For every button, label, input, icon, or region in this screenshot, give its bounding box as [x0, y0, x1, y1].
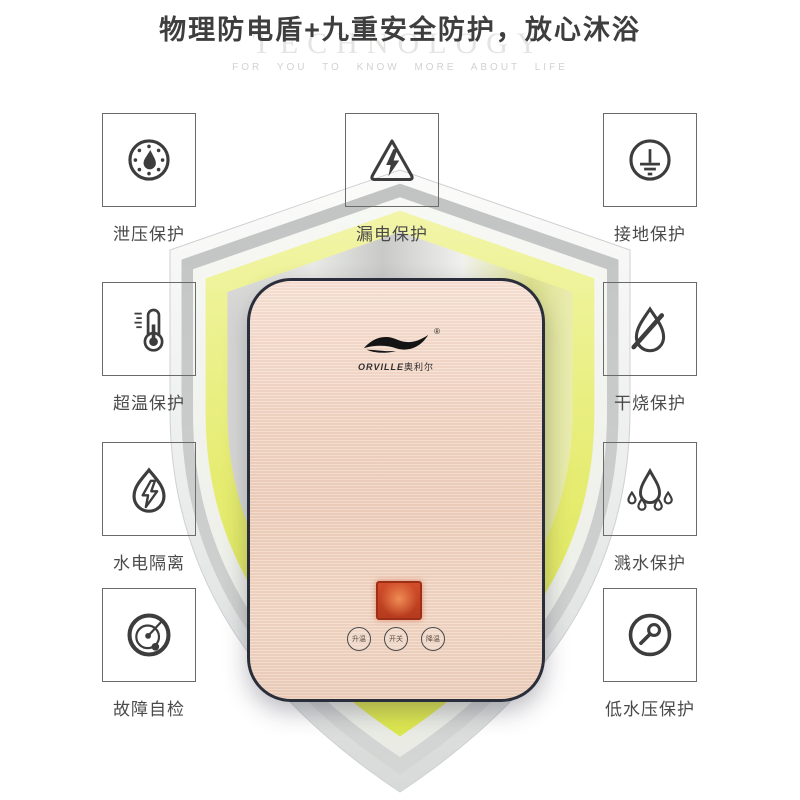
water-electric-icon — [120, 460, 178, 518]
feature-low-water-pressure: 低水压保护 — [603, 588, 697, 720]
feature-box — [603, 588, 697, 682]
temp-up-button: 升温 — [347, 627, 371, 651]
registered-mark: ® — [434, 327, 440, 336]
feature-label: 水电隔离 — [113, 549, 185, 574]
feature-label: 泄压保护 — [113, 220, 185, 245]
brand-name-en: ORVILLE — [358, 362, 404, 372]
feature-over-temperature: 超温保护 — [102, 282, 196, 414]
feature-self-check: 故障自检 — [102, 588, 196, 720]
brand-name-cn: 奥利尔 — [404, 362, 434, 372]
grounding-icon — [621, 131, 679, 189]
feature-pressure-relief: 泄压保护 — [102, 113, 196, 245]
water-heater-product: ® ORVILLE奥利尔 升温 开关 降温 — [247, 278, 545, 702]
splash-icon — [621, 460, 679, 518]
feature-splash-protection: 溅水保护 — [603, 442, 697, 574]
feature-label: 低水压保护 — [605, 695, 695, 720]
brand-text: ORVILLE奥利尔 — [358, 360, 434, 373]
feature-water-electric-isolation: 水电隔离 — [102, 442, 196, 574]
feature-box — [345, 113, 439, 207]
wave-logo-icon — [361, 331, 431, 357]
brand-block: ® ORVILLE奥利尔 — [250, 331, 542, 373]
feature-dry-burn: 干烧保护 — [603, 282, 697, 414]
feature-label: 干烧保护 — [614, 389, 686, 414]
feature-label: 故障自检 — [113, 695, 185, 720]
brand-logo: ® — [361, 331, 431, 357]
feature-box — [102, 588, 196, 682]
feature-label: 接地保护 — [614, 220, 686, 245]
dry-burn-icon — [621, 300, 679, 358]
feature-label: 溅水保护 — [614, 549, 686, 574]
feature-box — [102, 282, 196, 376]
feature-box — [603, 282, 697, 376]
feature-leakage-protection: 漏电保护 — [345, 113, 439, 245]
pressure-gauge-icon — [120, 131, 178, 189]
leakage-triangle-icon — [363, 131, 421, 189]
tagline: FOR YOU TO KNOW MORE ABOUT LIFE — [0, 62, 800, 73]
feature-box — [603, 442, 697, 536]
temperature-display — [376, 581, 422, 620]
feature-label: 超温保护 — [113, 389, 185, 414]
promo-page: TECHNOLOGY 物理防电盾+九重安全防护，放心沐浴 FOR YOU TO … — [0, 0, 800, 800]
power-button: 开关 — [384, 627, 408, 651]
feature-grounding: 接地保护 — [603, 113, 697, 245]
low-pressure-icon — [621, 606, 679, 664]
self-check-icon — [120, 606, 178, 664]
thermometer-icon — [120, 300, 178, 358]
temp-down-button: 降温 — [421, 627, 445, 651]
feature-label: 漏电保护 — [356, 220, 428, 245]
feature-box — [102, 113, 196, 207]
control-buttons: 升温 开关 降温 — [250, 627, 542, 651]
feature-box — [603, 113, 697, 207]
feature-box — [102, 442, 196, 536]
page-title: 物理防电盾+九重安全防护，放心沐浴 — [0, 8, 800, 47]
